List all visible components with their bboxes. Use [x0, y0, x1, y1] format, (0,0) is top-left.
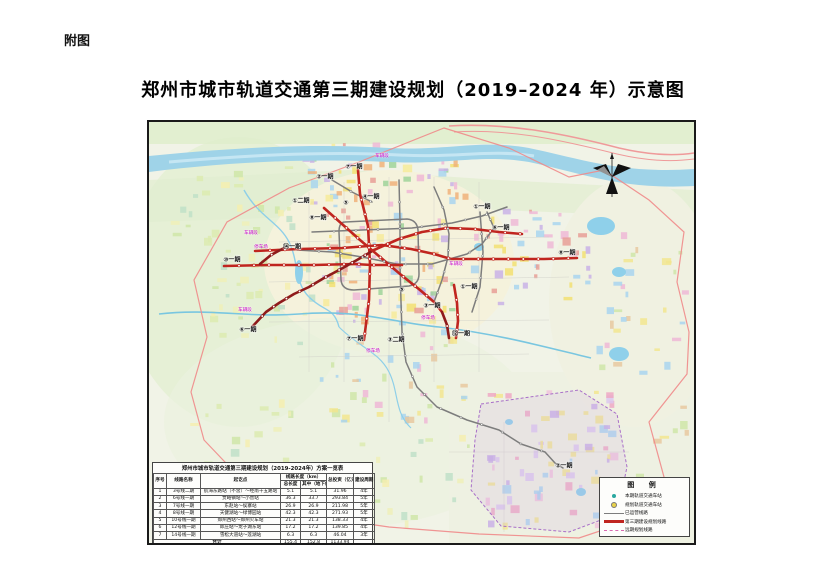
legend-item-label: 本期轨道交通车站 [625, 493, 662, 499]
col-header-length-total: 总长度 [281, 481, 301, 488]
col-header-period: 建设周期 [354, 474, 375, 489]
legend-item-label: 已运营线路 [625, 510, 648, 516]
col-header-termini: 起讫点 [201, 474, 281, 489]
table-row: 37号线一期东赵站～侯寨站26.926.9211.985年 [154, 503, 375, 510]
legend: 图 例 本期轨道交通车站规划轨道交通车站已运营线路第三期建设规划线路远期规划线路 [599, 477, 690, 537]
page-title: 郑州市城市轨道交通第三期建设规划（2019–2024 年）示意图 [0, 76, 826, 102]
legend-item: 远期规划线路 [603, 526, 686, 535]
table-row: 714号线一期雪松大道站～莲湖站6.36.346.043年 [154, 532, 375, 539]
col-header-index: 序号 [154, 474, 167, 489]
summary-table-title: 郑州市城市轨道交通第三期建设规划（2019-2024年）方案一览表 [153, 463, 372, 473]
table-row: 合计155.4152.81133.94 [154, 539, 375, 543]
dot-teal-icon [603, 494, 625, 498]
legend-item: 规划轨道交通车站 [603, 501, 686, 510]
legend-item: 本期轨道交通车站 [603, 492, 686, 501]
line-gray-icon [603, 513, 625, 514]
col-header-name: 线路名称 [167, 474, 201, 489]
lake [587, 217, 615, 235]
table-row: 13号线二期航海东路站（不含）～经南十五路站5.15.131.964年 [154, 488, 375, 495]
col-header-length-underground: 其中（地下线） [301, 481, 327, 488]
legend-title: 图 例 [603, 480, 686, 490]
legend-item-label: 规划轨道交通车站 [625, 502, 662, 508]
figure-label: 附图 [64, 30, 90, 49]
dot-yellow-icon [603, 502, 625, 508]
map-frame: ⑦一期②一期①二期④一期⑤⑧一期①一期⑥一期⑧一期⑩一期⑭一期⑤③一期①一期⑫一… [147, 120, 696, 545]
legend-item: 已运营线路 [603, 509, 686, 518]
col-header-investment: 总投资（亿元） [327, 474, 354, 489]
summary-table: 郑州市城市轨道交通第三期建设规划（2019-2024年）方案一览表 序号 线路名… [152, 462, 373, 543]
page: 附图 郑州市城市轨道交通第三期建设规划（2019–2024 年）示意图 [0, 0, 826, 584]
table-row: 612号线一期郎庄站～龙子湖东站17.217.2139.854年 [154, 524, 375, 531]
table-row: 26号线一期贾峪镇站～小营站36.333.7293.845年 [154, 495, 375, 502]
legend-item-label: 远期规划线路 [625, 527, 653, 533]
col-header-length-group: 线路长度（km） [281, 474, 327, 481]
table-row: 510号线一期郑州西站～郑州火车站21.321.3138.334年 [154, 517, 375, 524]
table-row: 48号线一期天健湖站～绿博园站42.342.3271.935年 [154, 510, 375, 517]
legend-item-label: 第三期建设规划线路 [625, 519, 666, 525]
legend-item: 第三期建设规划线路 [603, 518, 686, 527]
map-canvas: ⑦一期②一期①二期④一期⑤⑧一期①一期⑥一期⑧一期⑩一期⑭一期⑤③一期①一期⑫一… [149, 122, 694, 543]
line-red-icon [603, 520, 625, 523]
line-magenta-icon [603, 530, 625, 531]
